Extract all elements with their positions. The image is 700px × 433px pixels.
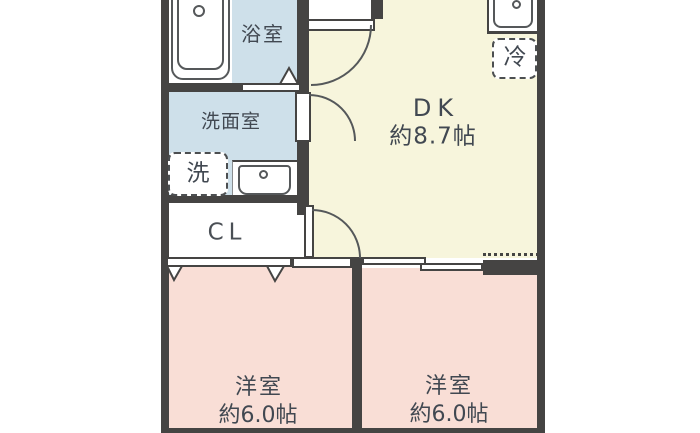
closet-label: CL: [208, 222, 247, 245]
washroom-label: 洗面室: [201, 113, 261, 132]
wall-bath-wash: [169, 83, 243, 92]
closet-folding-door: [166, 257, 292, 267]
bedroom-right-area-label: 約6.0帖: [410, 404, 489, 426]
refrigerator-label: 冷: [504, 47, 527, 70]
bedroom-left-door-leaf: [304, 205, 314, 258]
wall-wash-closet: [169, 195, 297, 203]
wall-core-mid: [297, 140, 309, 215]
floorplan: 浴室 洗面室 洗 CL DK 約8.7帖 冷 洋室 約6.0帖 洋室 約6.0帖: [0, 0, 700, 433]
bedroom-right-label: 洋室: [425, 376, 473, 398]
bathroom-label: 浴室: [241, 24, 285, 44]
toilet-room: [309, 0, 371, 19]
wall-core-top: [297, 0, 309, 93]
kitchen-faucet: [512, 0, 521, 9]
dk-label: DK: [413, 96, 459, 120]
sliding-door-panel-2: [420, 263, 483, 271]
wall-left: [161, 0, 169, 433]
wall-dk-bedroom-right: [483, 260, 537, 275]
bathroom-door-opening: [243, 83, 299, 92]
upper-cabinet-dotted-line: [483, 253, 539, 256]
wall-between-bedrooms: [352, 257, 362, 433]
toilet-door-leaf: [307, 19, 375, 31]
bedroom-left-area-label: 約6.0帖: [219, 405, 298, 427]
wall-right: [537, 0, 545, 433]
washroom-door-leaf: [295, 92, 311, 142]
bedroom-left-door-threshold: [292, 257, 352, 268]
bathtub-drain: [193, 5, 205, 17]
vanity-faucet: [259, 170, 268, 179]
bedroom-left-label: 洋室: [235, 377, 283, 399]
wall-toilet-right: [371, 0, 383, 19]
dk-area-label: 約8.7帖: [389, 126, 477, 149]
sliding-door-panel-1: [362, 257, 426, 265]
washing-machine-label: 洗: [187, 163, 210, 186]
